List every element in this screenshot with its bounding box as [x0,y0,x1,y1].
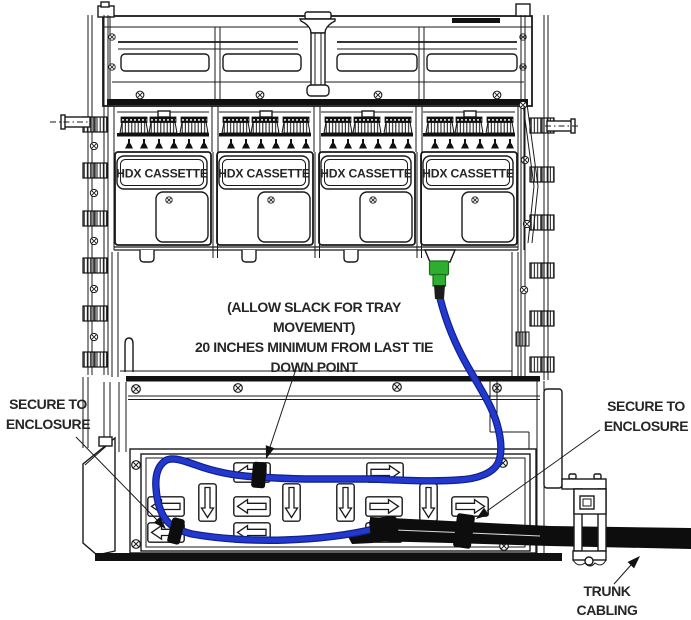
cassette-door [156,192,208,242]
trunk-label-line: TRUNK [584,583,631,599]
adapter-bay [117,111,209,149]
hdx-cassette-4: HDX CASSETTE [421,152,517,245]
cassette-label: HDX CASSETTE [320,167,412,181]
top-band-mark [452,18,500,23]
cassette-row: HDX CASSETTE HDX CASSETTE HDX CASSETTE H… [115,152,517,258]
furcation-plug [369,515,400,542]
top-left-tab-cap [101,2,109,7]
adapter-bay [423,111,515,149]
green-connector [430,261,449,299]
hdx-cassette-2: HDX CASSETTE [217,152,313,245]
right-side-panel [544,389,562,488]
top-panel-insert [427,54,517,71]
secure-left-line: ENCLOSURE [6,416,90,432]
slack-note-line: 20 INCHES MINIMUM FROM LAST TIE [195,339,433,355]
cassette-door [360,192,412,242]
cassette-label: HDX CASSETTE [422,167,514,181]
left-mount-arm [50,115,90,129]
hdx-cassette-3: HDX CASSETTE [319,152,415,245]
cassette-label: HDX CASSETTE [218,167,310,181]
left-rail [50,15,108,375]
secure-right-line: ENCLOSURE [604,418,688,434]
top-panel-rail-band [107,99,528,105]
shelf-tab [140,250,154,262]
secure-right-line: SECURE TO [607,398,685,414]
hinge-pin [125,338,133,372]
left-gusset-plate [83,437,115,555]
slack-note-line: DOWN POINT [271,359,359,375]
trunk-cabling-note: TRUNK CABLING [577,556,640,618]
tie-strap [251,461,267,488]
leader-line [614,565,631,584]
top-panel-insert [223,54,301,71]
slack-note-line: MOVEMENT) [273,319,355,335]
slack-note-line: (ALLOW SLACK FOR TRAY [227,299,402,315]
cable-clamp-bracket [562,474,606,566]
cassette-door [462,192,514,242]
enclosure-base-rail [95,553,562,561]
trunk-label-line: CABLING [577,602,638,618]
top-panel-insert [121,54,209,71]
top-right-tab [516,4,530,16]
adapter-bay [321,111,413,149]
shelf-tab [344,250,358,262]
cassette-shelf [114,247,518,262]
cassette-door [258,192,310,242]
enclosure-cabling-diagram: HDX CASSETTE HDX CASSETTE HDX CASSETTE H… [0,0,691,620]
top-panel-insert [337,54,417,71]
adapter-bay [219,111,311,149]
shelf-tab [242,250,256,262]
hdx-cassette-1: HDX CASSETTE [115,152,211,245]
right-mount-arm [545,119,580,133]
connector-boot [434,285,445,299]
secure-left-line: SECURE TO [9,396,87,412]
connector-mount-notch [425,250,455,262]
enclosure-top-panel [98,2,532,106]
cassette-label: HDX CASSETTE [116,167,208,181]
